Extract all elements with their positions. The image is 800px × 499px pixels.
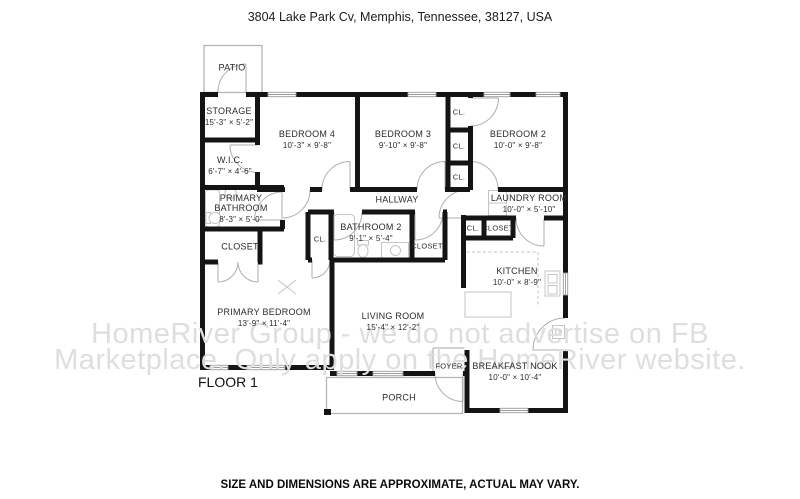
room-name: BEDROOM 2 (490, 129, 546, 140)
vanity-sink-bathroom2 (391, 246, 401, 256)
room-label-bedroom2: BEDROOM 2 10'-0" × 9'-8" (490, 129, 546, 151)
room-label-bedroom3: BEDROOM 3 9'-10" × 9'-8" (375, 129, 431, 151)
room-label-breakfast-nook: BREAKFAST NOOK 10'-0" × 10'-4" (472, 361, 557, 383)
room-name: CL. (467, 224, 479, 233)
disclaimer-text: SIZE AND DIMENSIONS ARE APPROXIMATE, ACT… (0, 479, 800, 491)
ceiling-fan-icon (278, 280, 296, 294)
room-name: STORAGE (206, 106, 252, 117)
room-dims: 10'-0" × 10'-4" (489, 373, 542, 383)
room-name: CL. (453, 173, 465, 182)
room-dims: 10'-3" × 9'-8" (283, 141, 331, 151)
room-name: CL. (453, 108, 465, 117)
room-label-living-room: LIVING ROOM 15'-4" × 12'-2" (362, 311, 425, 333)
room-label-patio: PATIO (219, 63, 246, 74)
room-label-primary-bathroom: PRIMARY BATHROOM 8'-3" × 5'-0" (209, 193, 273, 225)
room-name: PRIMARY BEDROOM (217, 307, 310, 318)
room-label-bedroom4: BEDROOM 4 10'-3" × 9'-8" (279, 129, 335, 151)
room-label-cl-laundry: CL. (467, 224, 479, 233)
room-name: W.I.C. (217, 155, 243, 166)
room-name: CL. (314, 235, 326, 244)
floorplan-sheet: 3804 Lake Park Cv, Memphis, Tennessee, 3… (0, 0, 800, 499)
stove-burner-top (548, 275, 557, 284)
room-name: PORCH (382, 393, 416, 404)
room-label-wic: W.I.C. 6'-7" × 4'-6" (208, 155, 252, 177)
room-label-closet-primary: CLOSET (221, 242, 259, 253)
room-dims: 10'-0" × 8'-9" (493, 278, 541, 288)
room-label-kitchen: KITCHEN 10'-0" × 8'-9" (493, 266, 541, 288)
room-name: BATHROOM 2 (340, 222, 401, 233)
room-name: BEDROOM 3 (375, 129, 431, 140)
room-name: KITCHEN (496, 266, 537, 277)
floor-plan-drawing (0, 0, 800, 499)
room-name: HALLWAY (375, 195, 418, 206)
room-label-primary-bedroom: PRIMARY BEDROOM 13'-9" × 11'-4" (217, 307, 310, 329)
room-name: PATIO (219, 63, 246, 74)
room-dims: 8'-3" × 5'-0" (219, 215, 263, 225)
room-dims: 15'-4" × 12'-2" (367, 323, 420, 333)
room-label-cl-bottom: CL. (453, 173, 465, 182)
room-dims: 9'-1" × 5'-4" (349, 234, 393, 244)
room-dims: 10'-0" × 9'-8" (494, 141, 542, 151)
room-label-cl-top: CL. (453, 108, 465, 117)
address-title: 3804 Lake Park Cv, Memphis, Tennessee, 3… (0, 10, 800, 24)
room-label-foyer: FOYER (435, 362, 462, 371)
room-dims: 9'-10" × 9'-8" (379, 141, 427, 151)
room-dims: 6'-7" × 4'-6" (208, 167, 252, 177)
room-label-cl-mid: CL. (453, 142, 465, 151)
room-label-cl-hall: CL. (314, 235, 326, 244)
room-name: LAUNDRY ROOM (491, 193, 567, 204)
room-name: PRIMARY BATHROOM (209, 193, 273, 214)
room-label-closet-laundry: CLOSET (482, 224, 514, 233)
stove-burner-bottom (548, 286, 557, 295)
room-name: CLOSET (221, 242, 259, 253)
room-label-storage: STORAGE 15'-3" × 5'-2" (205, 106, 253, 128)
room-dims: 10'-0" × 5'-10" (503, 205, 556, 215)
room-dims: 13'-9" × 11'-4" (238, 319, 290, 329)
room-name: CL. (453, 142, 465, 151)
room-name: BREAKFAST NOOK (472, 361, 557, 372)
watermark-line2: Marketplace. Only apply on the HomeRiver… (0, 347, 800, 373)
room-name: LIVING ROOM (362, 311, 425, 322)
floor-label: FLOOR 1 (198, 374, 258, 390)
toilet-bowl-bathroom2 (358, 245, 368, 258)
room-label-hallway: HALLWAY (375, 195, 418, 206)
room-name: BEDROOM 4 (279, 129, 335, 140)
room-name: FOYER (435, 362, 462, 371)
room-name: CLOSET (482, 224, 514, 233)
room-name: CLOSET (411, 242, 443, 251)
room-label-bathroom2: BATHROOM 2 9'-1" × 5'-4" (340, 222, 401, 244)
room-label-laundry: LAUNDRY ROOM 10'-0" × 5'-10" (491, 193, 567, 215)
porch-post (324, 409, 331, 415)
kitchen-island (465, 292, 511, 317)
room-label-closet-hall: CLOSET (411, 242, 443, 251)
room-dims: 15'-3" × 5'-2" (205, 118, 253, 128)
room-label-porch: PORCH (382, 393, 416, 404)
